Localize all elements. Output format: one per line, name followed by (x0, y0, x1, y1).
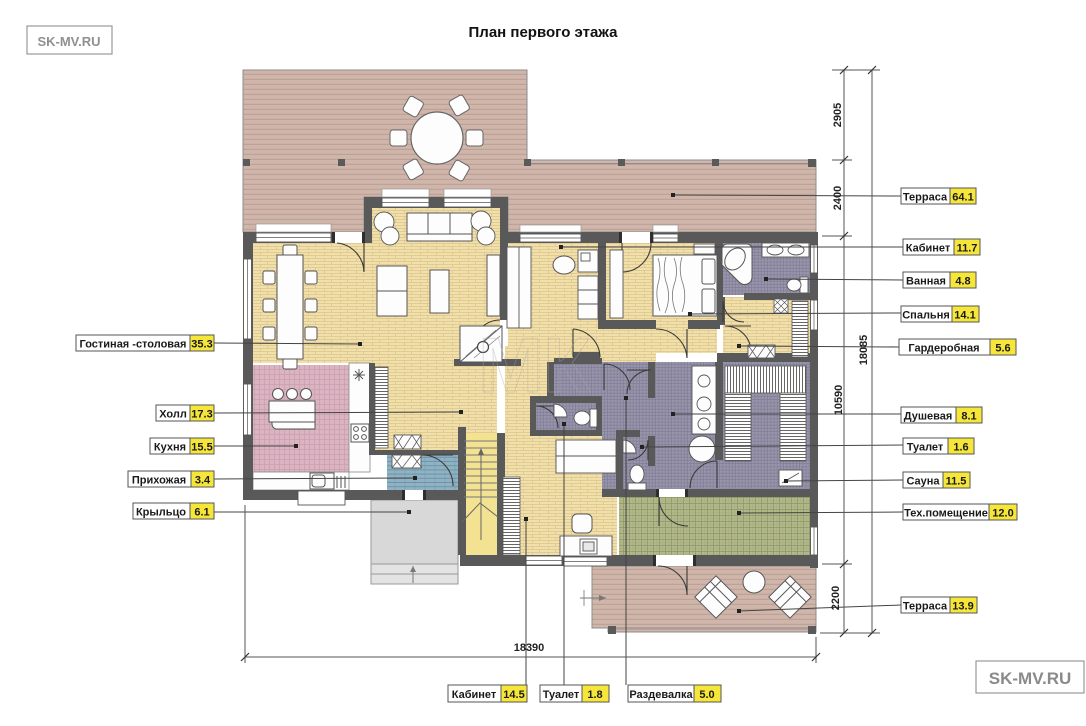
svg-text:SK-MV.RU: SK-MV.RU (989, 669, 1072, 688)
svg-text:1.8: 1.8 (587, 689, 602, 701)
svg-text:5.0: 5.0 (699, 689, 714, 701)
svg-text:11.7: 11.7 (957, 243, 978, 255)
svg-text:Гардеробная: Гардеробная (908, 343, 979, 355)
svg-text:14.1: 14.1 (954, 310, 975, 322)
svg-text:SK-MV.RU: SK-MV.RU (37, 34, 100, 49)
svg-text:Душевая: Душевая (904, 411, 953, 423)
svg-text:3.4: 3.4 (195, 475, 211, 487)
svg-text:Прихожая: Прихожая (132, 475, 186, 487)
svg-text:Спальня: Спальня (902, 310, 950, 322)
svg-text:64.1: 64.1 (952, 192, 973, 204)
svg-text:Раздевалка: Раздевалка (629, 689, 693, 701)
svg-text:Туалет: Туалет (907, 442, 944, 454)
svg-text:12.0: 12.0 (992, 508, 1013, 520)
svg-text:2400: 2400 (832, 186, 844, 210)
svg-text:План первого этажа: План первого этажа (469, 24, 619, 41)
svg-text:2905: 2905 (832, 103, 844, 127)
svg-text:10590: 10590 (833, 385, 845, 416)
svg-text:Сауна: Сауна (906, 476, 940, 488)
svg-text:Кухня: Кухня (154, 442, 186, 454)
svg-text:35.3: 35.3 (191, 339, 212, 351)
svg-text:15.5: 15.5 (191, 442, 212, 454)
svg-text:Тех.помещение: Тех.помещение (904, 508, 988, 520)
svg-text:2200: 2200 (830, 586, 842, 610)
svg-text:Туалет: Туалет (543, 689, 580, 701)
svg-text:Холл: Холл (159, 409, 187, 421)
svg-text:18390: 18390 (514, 642, 545, 654)
svg-text:11.5: 11.5 (946, 476, 967, 488)
svg-text:4.8: 4.8 (955, 276, 970, 288)
svg-text:Крыльцо: Крыльцо (136, 507, 186, 519)
svg-text:Кабинет: Кабинет (452, 689, 497, 701)
svg-text:Ванная: Ванная (906, 276, 946, 288)
svg-text:1.6: 1.6 (953, 442, 968, 454)
svg-text:Гостиная -столовая: Гостиная -столовая (80, 339, 187, 351)
svg-text:Терраса: Терраса (903, 601, 948, 613)
svg-text:18085: 18085 (858, 335, 870, 366)
svg-text:5.6: 5.6 (995, 343, 1010, 355)
svg-text:17.3: 17.3 (191, 409, 212, 421)
svg-text:14.5: 14.5 (503, 689, 524, 701)
svg-text:Кабинет: Кабинет (906, 243, 951, 255)
svg-text:Терраса: Терраса (903, 192, 948, 204)
svg-text:13.9: 13.9 (952, 601, 973, 613)
svg-text:МК: МК (478, 321, 591, 409)
svg-text:8.1: 8.1 (961, 411, 976, 423)
svg-text:6.1: 6.1 (194, 507, 209, 519)
